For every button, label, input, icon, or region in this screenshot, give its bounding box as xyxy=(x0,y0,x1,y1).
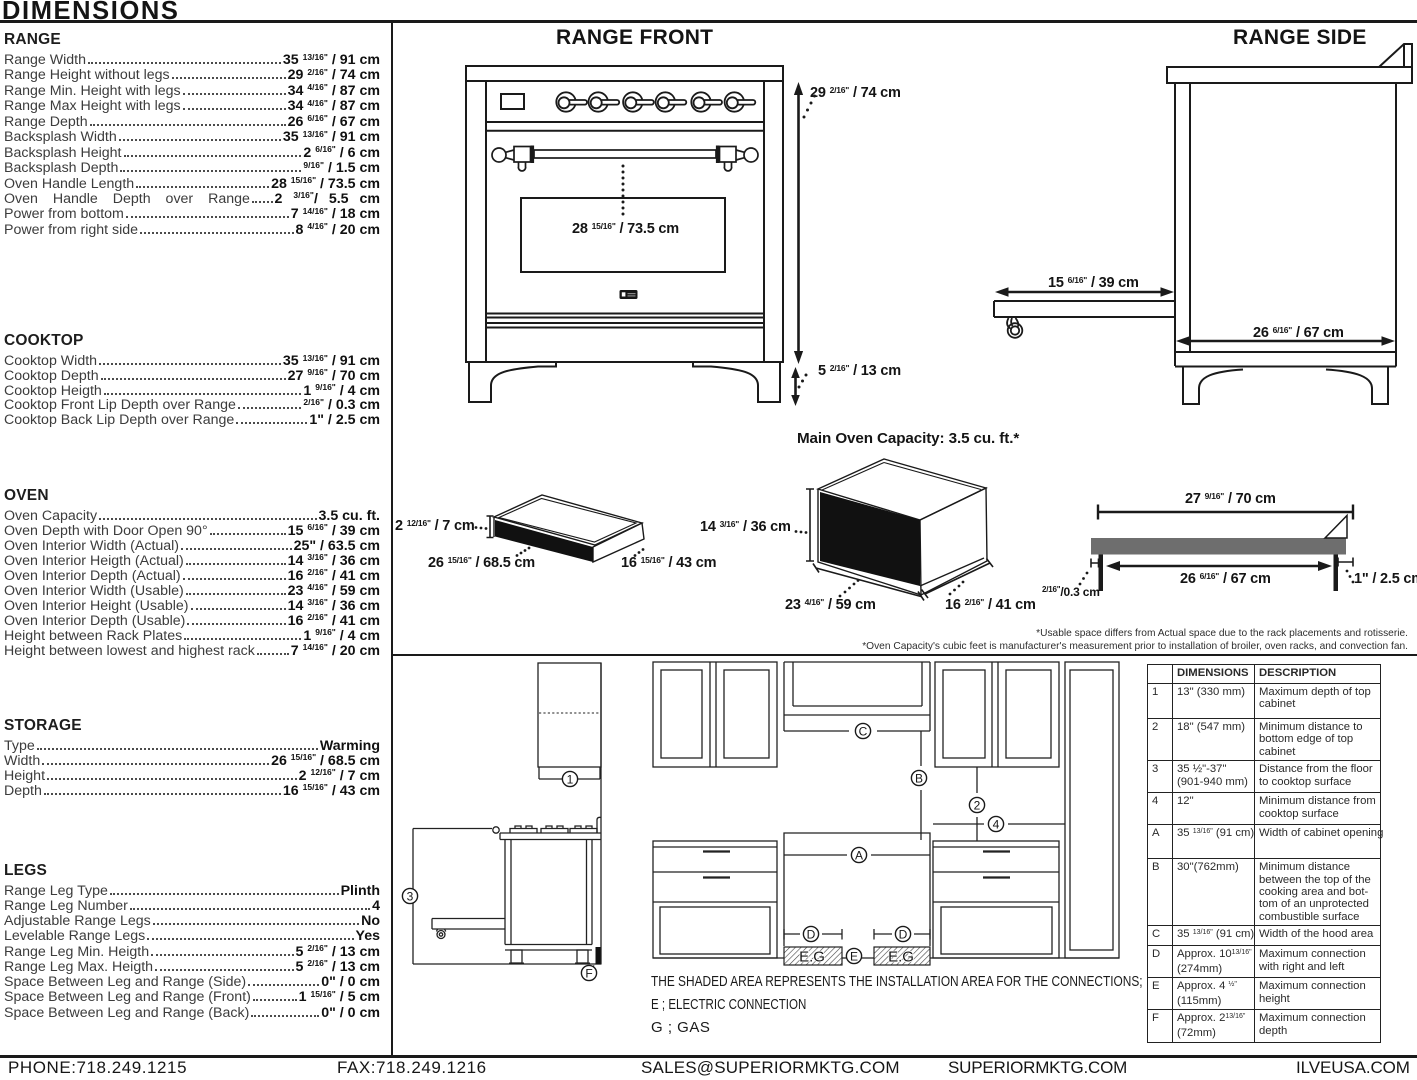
svg-text:C: C xyxy=(859,725,868,739)
svg-text:D: D xyxy=(807,928,816,942)
svg-text:1: 1 xyxy=(567,773,574,787)
svg-text:E: E xyxy=(850,950,858,964)
svg-text:E.G: E.G xyxy=(888,949,914,966)
svg-text:3: 3 xyxy=(407,890,414,904)
svg-text:A: A xyxy=(855,849,863,863)
svg-text:B: B xyxy=(915,772,923,786)
svg-text:F: F xyxy=(585,967,592,981)
svg-text:D: D xyxy=(899,928,908,942)
svg-text:2: 2 xyxy=(974,799,981,813)
svg-text:4: 4 xyxy=(993,818,1000,832)
svg-text:E.G: E.G xyxy=(799,949,825,966)
